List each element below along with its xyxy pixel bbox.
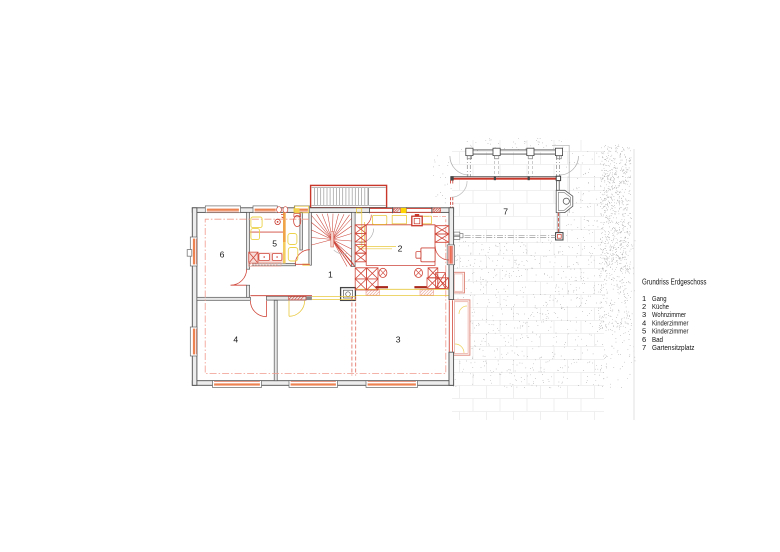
svg-text:5: 5	[272, 239, 277, 249]
svg-text:4: 4	[233, 334, 238, 344]
svg-text:6: 6	[220, 250, 225, 260]
svg-text:3: 3	[396, 334, 401, 344]
svg-text:7: 7	[642, 343, 646, 352]
svg-text:1: 1	[328, 270, 333, 280]
svg-text:Grundriss Erdgeschoss: Grundriss Erdgeschoss	[642, 277, 707, 286]
svg-text:2: 2	[398, 243, 403, 253]
svg-text:7: 7	[503, 206, 508, 216]
svg-text:Gartensitzplatz: Gartensitzplatz	[652, 343, 695, 352]
